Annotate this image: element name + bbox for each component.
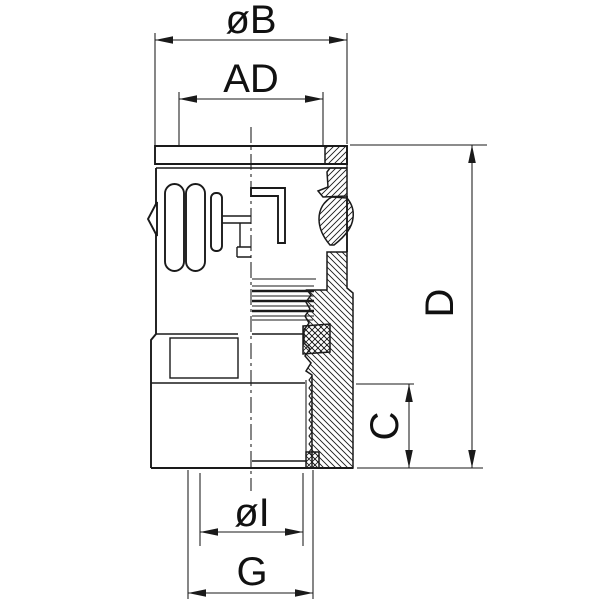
label-c: C <box>363 412 407 441</box>
recess-pocket <box>170 338 238 378</box>
label-g: G <box>236 550 267 594</box>
drawing-canvas: øB AD D C øI G <box>0 0 600 600</box>
label-d: D <box>418 289 462 318</box>
seal-cross-hatch <box>303 324 330 354</box>
fitting-section-drawing: øB AD D C øI G <box>0 0 600 600</box>
label-ad: AD <box>223 57 279 101</box>
lock-insert-bar <box>211 193 222 251</box>
top-flange-wall-hatch <box>325 146 347 164</box>
spring-capsule-2 <box>186 184 205 271</box>
label-oi: øI <box>234 491 270 535</box>
label-ob: øB <box>225 0 276 42</box>
spring-capsule-1 <box>165 184 184 271</box>
